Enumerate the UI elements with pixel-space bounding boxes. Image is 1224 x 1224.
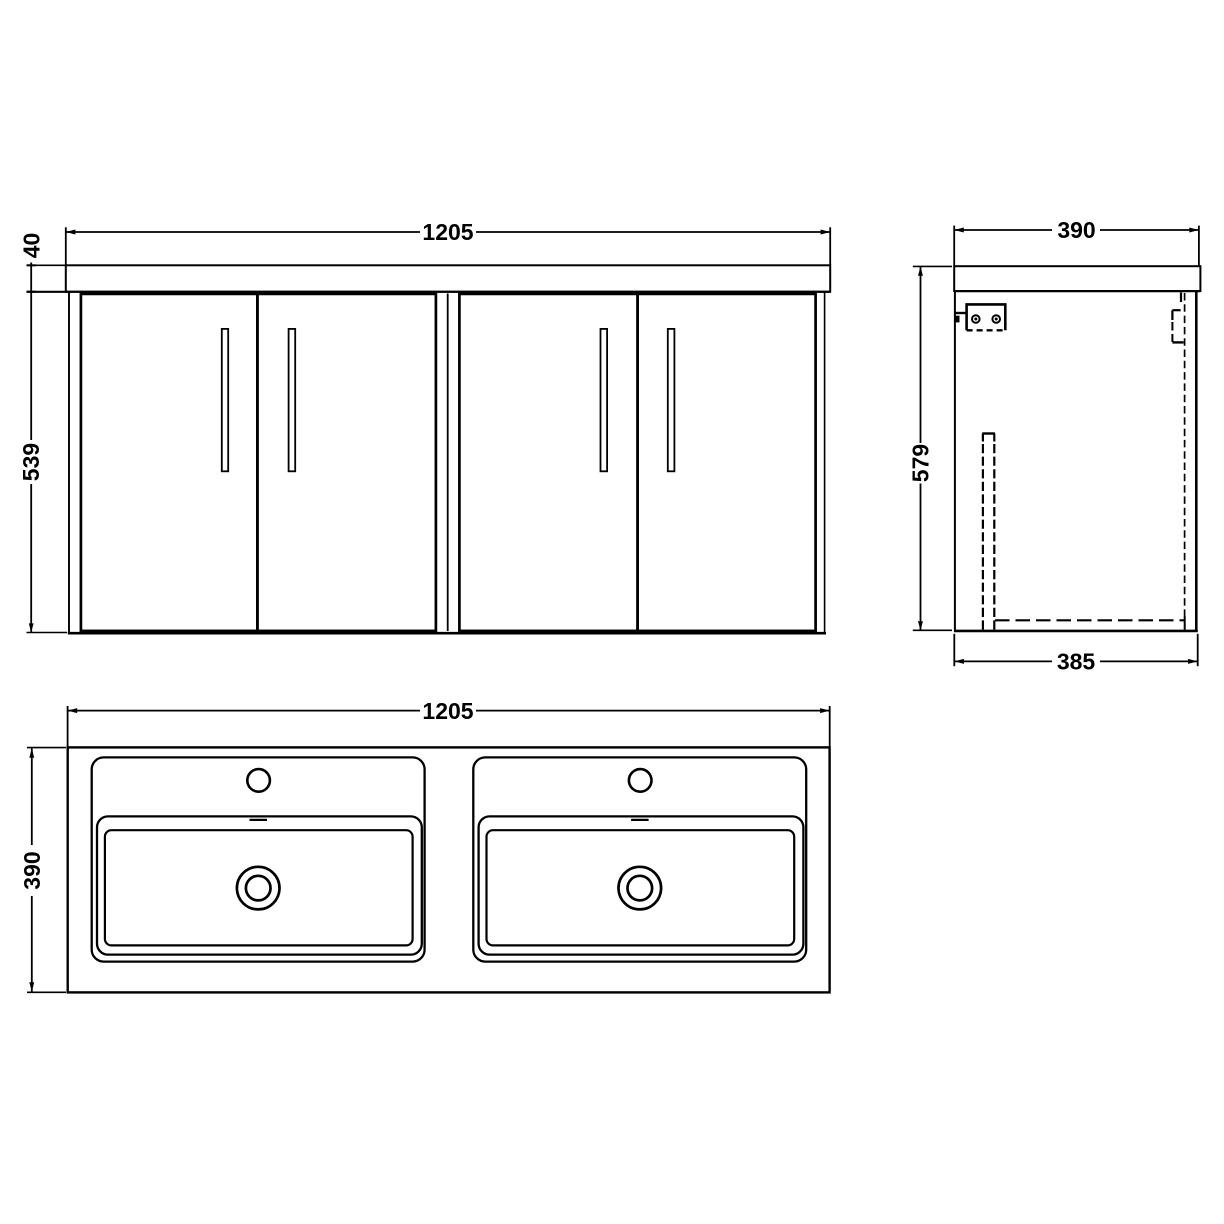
svg-text:390: 390: [1057, 217, 1095, 243]
svg-text:40: 40: [18, 233, 44, 259]
svg-text:579: 579: [908, 444, 934, 482]
svg-text:390: 390: [19, 851, 45, 889]
svg-text:539: 539: [18, 443, 44, 481]
svg-text:1205: 1205: [422, 698, 473, 724]
svg-text:385: 385: [1057, 649, 1096, 675]
svg-text:1205: 1205: [422, 219, 473, 245]
